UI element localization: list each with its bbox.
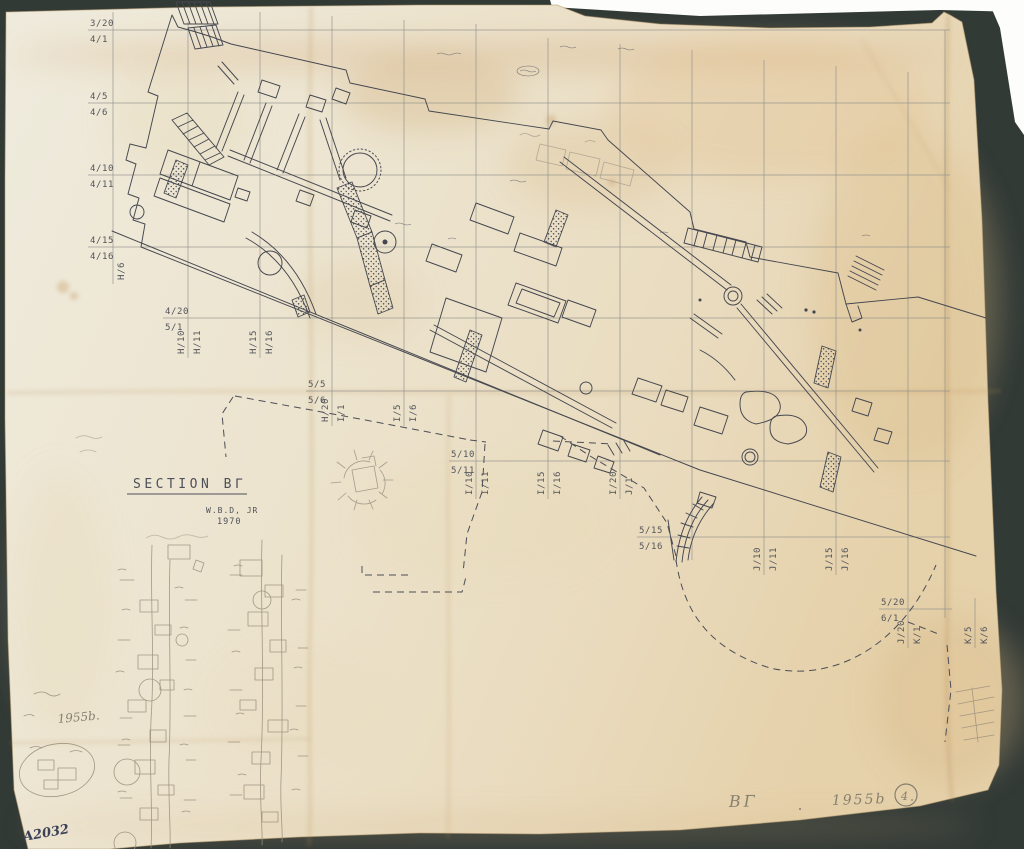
grid-column-label: K/5 xyxy=(964,626,974,644)
footer-dot xyxy=(799,808,801,810)
grid-row-label: 3/20 xyxy=(90,19,114,29)
plan-artwork: 3/20 4/1 4/5 4/6 4/10 4/11 4/15 4/16 4/2… xyxy=(0,0,1024,849)
grid-column-label: H/20 xyxy=(321,398,331,422)
grid-column-label: H/15 xyxy=(249,330,259,354)
footer-year-label: 1955b xyxy=(832,791,887,809)
grid-column-label: J/20 xyxy=(897,620,907,644)
surveyor-initials: W.B.D, JR xyxy=(206,506,258,515)
grid-row-label: 4/15 xyxy=(90,236,114,246)
grid-column-label: I/10 xyxy=(465,471,475,495)
section-title: SECTION BΓ xyxy=(133,477,246,492)
grid-column-label: H/16 xyxy=(265,330,275,354)
grid-column-label: I/1 xyxy=(337,404,347,422)
grid-row-label: 4/5 xyxy=(90,92,108,102)
grid-column-label: K/1 xyxy=(913,626,923,644)
grid-row-label: 5/20 xyxy=(881,598,905,608)
grid-row-label: 5/16 xyxy=(639,542,663,552)
grid-row-label: 5/10 xyxy=(451,450,475,460)
grid-column-label: J/16 xyxy=(841,547,851,571)
grid-column-label: I/11 xyxy=(481,471,491,495)
grid-column-label: K/6 xyxy=(980,626,990,644)
grid-column-label: I/6 xyxy=(409,404,419,422)
grid-column-label: H/6 xyxy=(117,262,127,280)
grid-column-label: I/20 xyxy=(609,471,619,495)
grid-column-label: H/10 xyxy=(177,330,187,354)
grid-column-label: I/5 xyxy=(393,404,403,422)
grid-row-label: 4/16 xyxy=(90,252,114,262)
grid-column-label: H/11 xyxy=(193,330,203,354)
grid-column-label: I/16 xyxy=(553,471,563,495)
grid-column-label: J/15 xyxy=(825,547,835,571)
grid-row-label: 4/11 xyxy=(90,180,114,190)
circled-number-value: 4 xyxy=(900,790,908,803)
grid-row-label: 4/10 xyxy=(90,164,114,174)
grid-column-label: J/10 xyxy=(753,547,763,571)
scanned-excavation-plan: 3/20 4/1 4/5 4/6 4/10 4/11 4/15 4/16 4/2… xyxy=(0,0,1024,849)
grid-column-label: J/1 xyxy=(625,477,635,495)
survey-year: 1970 xyxy=(217,517,241,527)
grid-column-label: J/11 xyxy=(769,547,779,571)
grid-row-label: 4/6 xyxy=(90,108,108,118)
grid-row-label: 5/15 xyxy=(639,526,663,536)
grid-column-label: I/15 xyxy=(537,471,547,495)
grid-row-label: 4/1 xyxy=(90,35,108,45)
grid-row-label: 4/20 xyxy=(165,307,189,317)
grid-row-label: 5/5 xyxy=(308,380,326,390)
footer-section-label: BΓ xyxy=(728,791,758,811)
